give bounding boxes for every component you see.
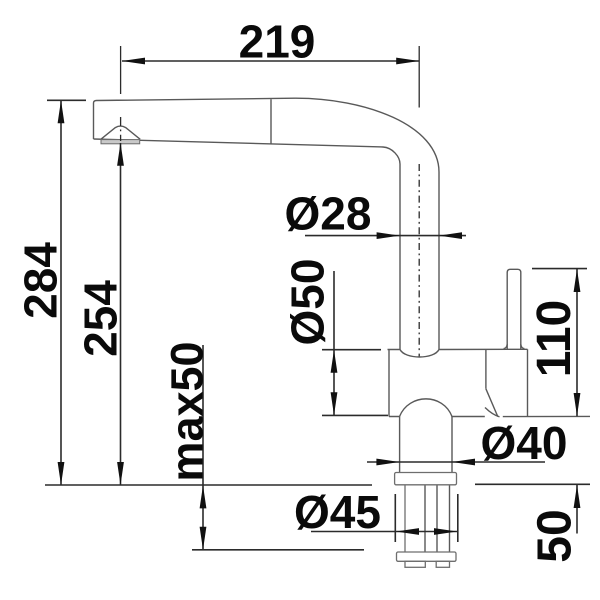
svg-text:254: 254 <box>75 280 127 357</box>
svg-text:50: 50 <box>529 509 582 562</box>
svg-text:Ø50: Ø50 <box>282 259 334 346</box>
svg-text:110: 110 <box>528 300 581 377</box>
svg-text:Ø28: Ø28 <box>285 188 372 240</box>
svg-text:284: 284 <box>15 242 67 319</box>
svg-text:Ø45: Ø45 <box>294 486 381 538</box>
svg-text:219: 219 <box>239 16 316 68</box>
svg-text:Ø40: Ø40 <box>481 417 568 469</box>
svg-text:max50: max50 <box>162 341 213 481</box>
